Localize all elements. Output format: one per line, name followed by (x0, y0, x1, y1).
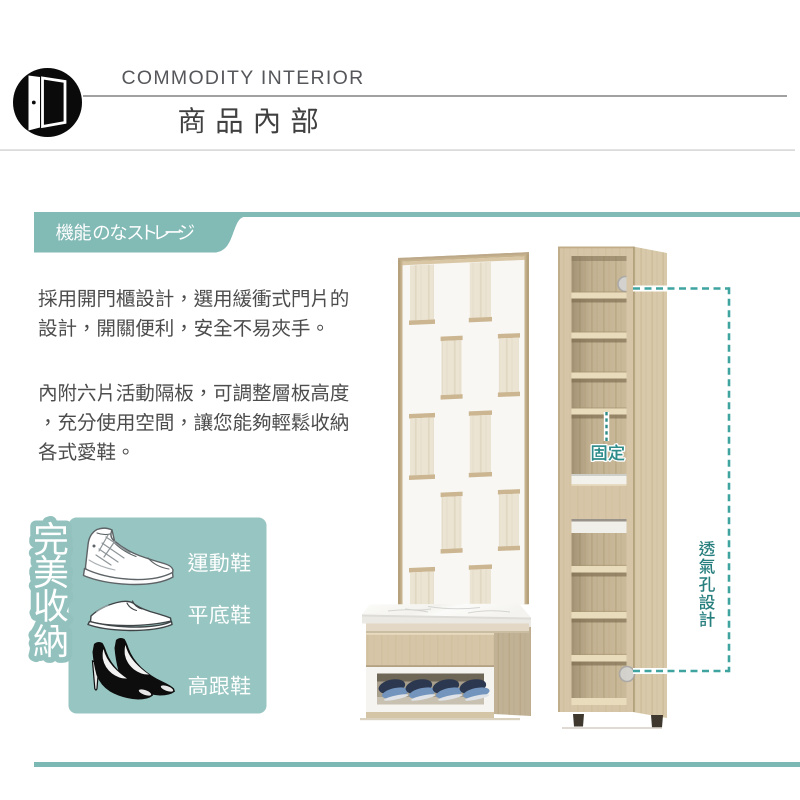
svg-text:COMMODITY INTERIOR: COMMODITY INTERIOR (122, 67, 365, 89)
